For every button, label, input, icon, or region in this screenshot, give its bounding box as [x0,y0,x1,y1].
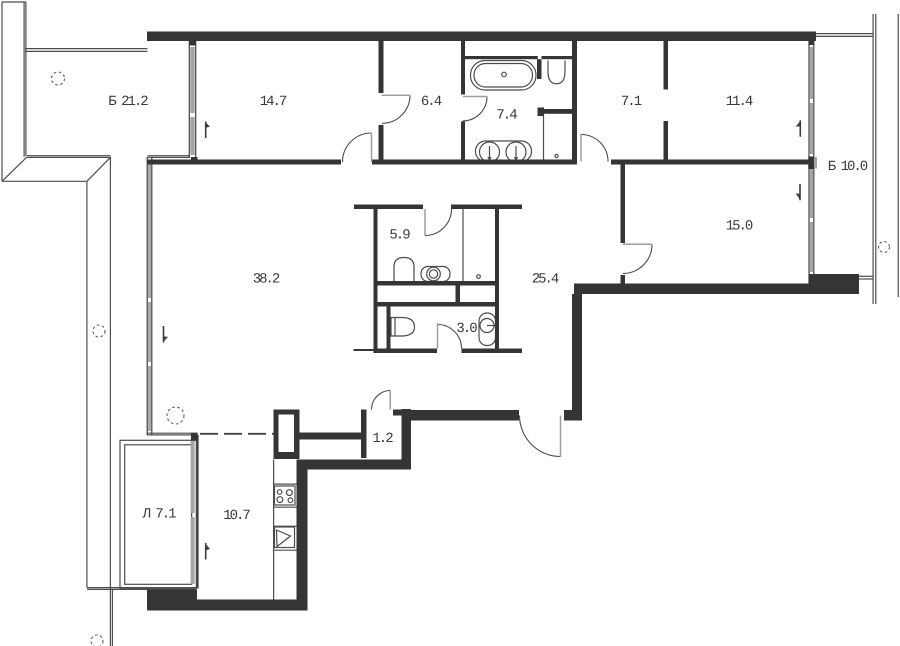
svg-text:1.2: 1.2 [372,431,393,447]
svg-text:15.0: 15.0 [726,219,753,235]
svg-text:3.0: 3.0 [456,321,477,337]
svg-text:10.7: 10.7 [223,508,250,524]
svg-text:25.4: 25.4 [532,272,559,288]
svg-text:5.9: 5.9 [389,228,410,244]
svg-text:Л 7.1: Л 7.1 [141,507,176,523]
svg-text:6.4: 6.4 [421,94,442,110]
svg-text:7.1: 7.1 [621,94,642,110]
svg-text:Б 10.0: Б 10.0 [828,159,868,175]
svg-text:38.2: 38.2 [253,272,280,288]
svg-text:11.4: 11.4 [726,94,753,110]
svg-text:7.4: 7.4 [496,108,517,124]
svg-text:14.7: 14.7 [260,94,287,110]
svg-text:Б 21.2: Б 21.2 [108,94,148,110]
